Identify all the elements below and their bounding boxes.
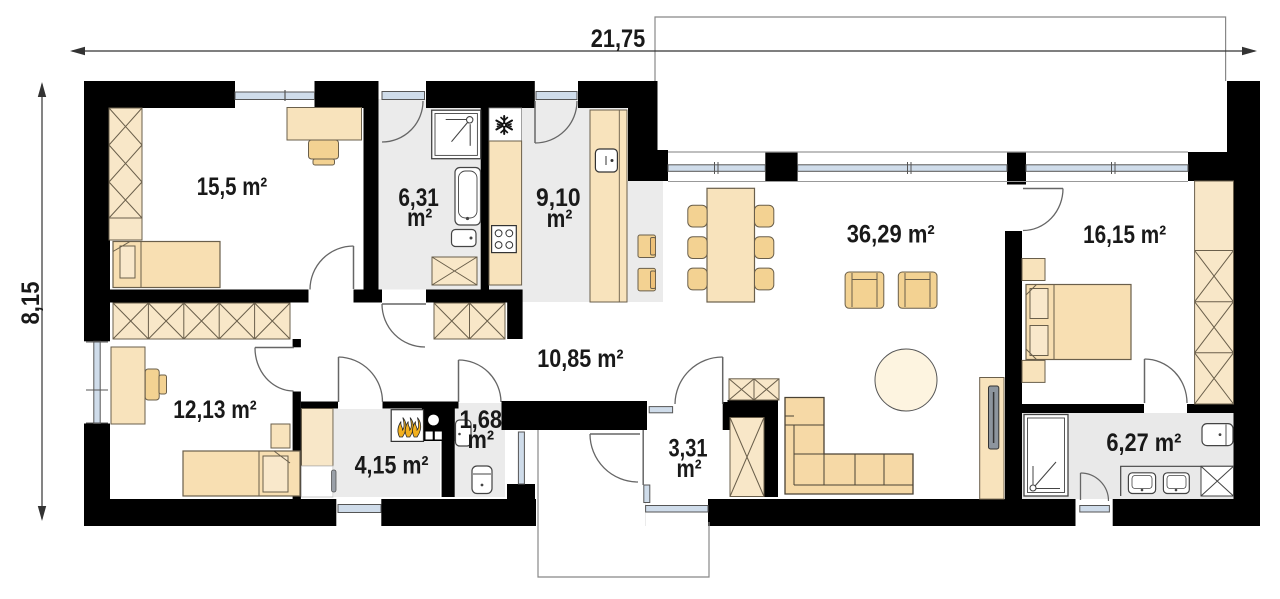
svg-text:8,15: 8,15	[17, 281, 45, 324]
svg-text:4,15 m²: 4,15 m²	[355, 451, 429, 479]
svg-text:m²: m²	[468, 426, 495, 454]
svg-text:12,13 m²: 12,13 m²	[173, 396, 257, 424]
svg-text:m²: m²	[676, 455, 701, 483]
svg-text:16,15 m²: 16,15 m²	[1083, 221, 1166, 249]
svg-text:36,29 m²: 36,29 m²	[847, 220, 935, 248]
svg-text:15,5 m²: 15,5 m²	[197, 173, 268, 201]
svg-text:m²: m²	[547, 205, 573, 233]
svg-text:21,75: 21,75	[591, 25, 646, 53]
svg-text:m²: m²	[407, 204, 432, 232]
svg-text:6,27 m²: 6,27 m²	[1106, 429, 1181, 457]
svg-text:10,85 m²: 10,85 m²	[537, 345, 623, 373]
